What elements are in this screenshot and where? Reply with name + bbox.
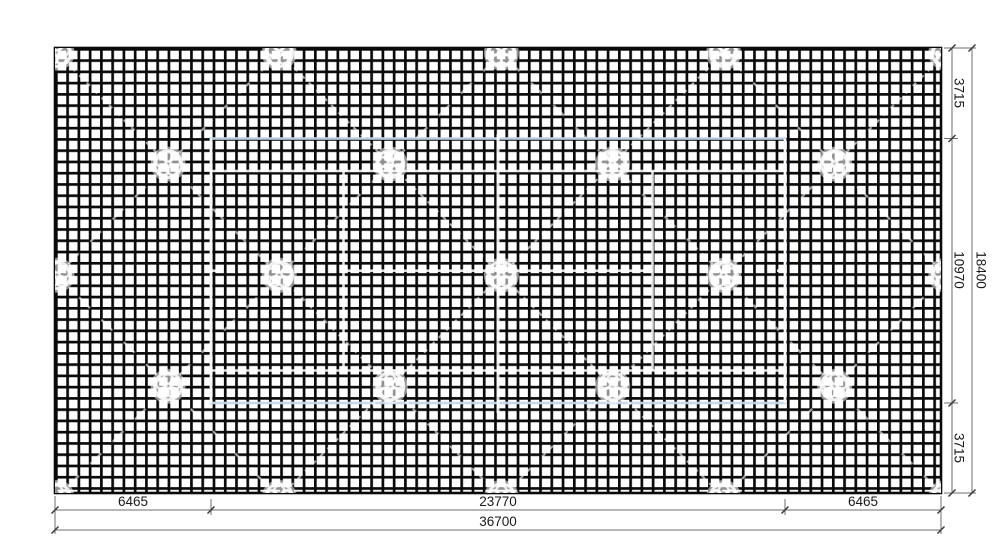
dim-label-bottom-middle: 23770 — [479, 494, 517, 509]
dim-label-right-total: 18400 — [973, 251, 988, 289]
dim-label-right-middle: 10970 — [951, 251, 966, 289]
dim-label-right-top: 3715 — [951, 78, 966, 108]
drawing-canvas: 6465 23770 6465 36700 3715 10970 3715 18… — [0, 0, 1000, 560]
dim-label-right-bottom: 3715 — [951, 433, 966, 463]
dim-label-bottom-total: 36700 — [479, 514, 517, 529]
site-plan-svg: 6465 23770 6465 36700 3715 10970 3715 18… — [0, 0, 1000, 560]
dim-label-bottom-right: 6465 — [848, 494, 878, 509]
dim-label-bottom-left: 6465 — [118, 494, 148, 509]
watermark-flower-icon — [55, 48, 941, 493]
